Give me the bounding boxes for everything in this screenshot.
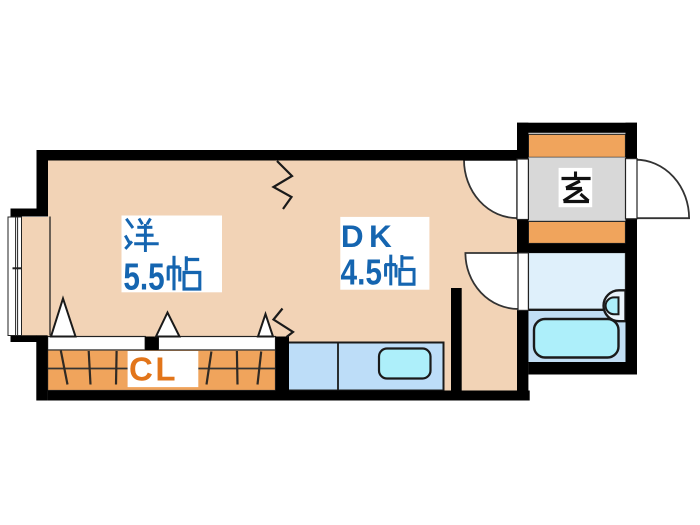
svg-text:4.5: 4.5 [341,252,383,293]
svg-text:5.5: 5.5 [123,256,164,298]
svg-text:CL: CL [129,351,176,388]
